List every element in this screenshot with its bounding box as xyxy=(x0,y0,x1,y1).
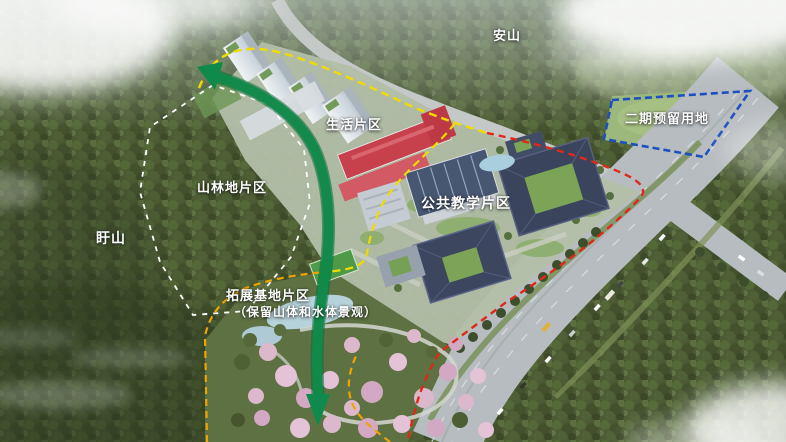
zone-label-phase2: 二期预留用地 xyxy=(625,112,709,127)
zone-label-expansion-title: 拓展基地片区 xyxy=(226,289,377,304)
mountain-label-anshan: 安山 xyxy=(493,29,521,44)
mountain-label-xushan: 盱山 xyxy=(96,232,126,247)
zone-label-forest: 山林地片区 xyxy=(197,181,267,196)
zone-label-living: 生活片区 xyxy=(326,118,382,133)
zone-label-expansion-note: （保留山体和水体景观） xyxy=(234,305,377,320)
zone-label-expansion: 拓展基地片区 （保留山体和水体景观） xyxy=(226,289,377,320)
zone-label-teaching: 公共教学片区 xyxy=(421,197,511,212)
site-plan-rendering: 安山 盱山 生活片区 山林地片区 公共教学片区 二期预留用地 拓展基地片区 （保… xyxy=(0,0,786,442)
aerial-render xyxy=(0,0,786,442)
